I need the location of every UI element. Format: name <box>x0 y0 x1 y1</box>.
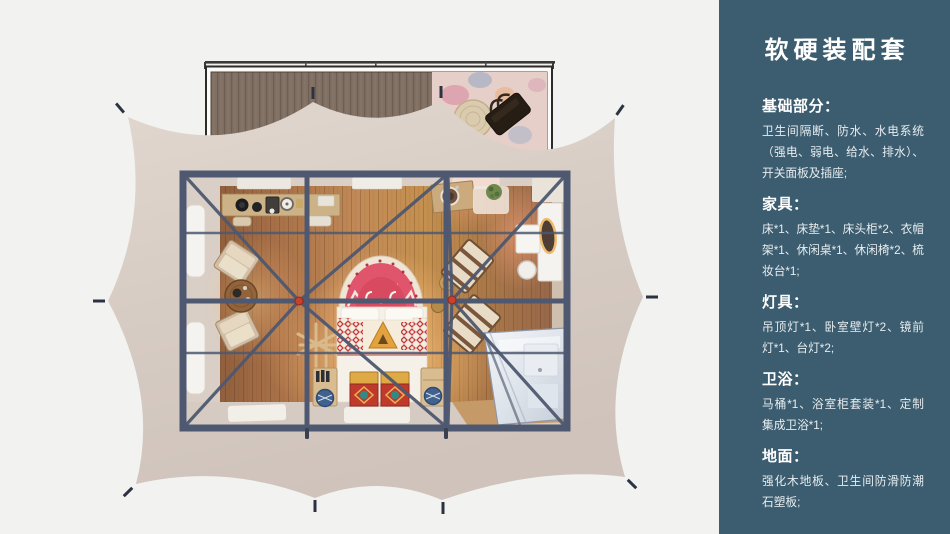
spec-heading: 家具： <box>762 193 924 214</box>
door-strap <box>444 428 448 439</box>
floor-mat <box>228 404 287 422</box>
spec-heading: 基础部分： <box>762 95 924 116</box>
spec-heading: 地面： <box>762 445 924 466</box>
stool <box>233 217 251 226</box>
spec-section-furniture: 家具： 床*1、床垫*1、床头柜*2、衣帽架*1、休闲桌*1、休闲椅*2、梳妆台… <box>762 193 924 282</box>
spec-body: 马桶*1、浴室柜套装*1、定制集成卫浴*1; <box>762 394 924 436</box>
spec-body: 卫生间隔断、防水、水电系统（强电、弱电、给水、排水）、开关面板及插座; <box>762 121 924 184</box>
bedside-cabinet <box>313 368 337 407</box>
spec-sidebar: 软硬装配套 基础部分： 卫生间隔断、防水、水电系统（强电、弱电、给水、排水）、开… <box>719 0 950 534</box>
bench <box>307 216 331 226</box>
page: 软硬装配套 基础部分： 卫生间隔断、防水、水电系统（强电、弱电、给水、排水）、开… <box>0 0 950 534</box>
tent-floorplan-render <box>0 0 719 534</box>
door-strap <box>305 428 309 439</box>
spec-heading: 卫浴： <box>762 368 924 389</box>
shower-unit <box>484 328 566 425</box>
vanity-stool <box>518 261 536 279</box>
hat <box>252 202 262 212</box>
washbasin <box>431 181 476 213</box>
leisure-table <box>225 280 257 312</box>
deck-railing <box>205 61 555 64</box>
spec-section-lighting: 灯具： 吊顶灯*1、卧室壁灯*2、镜前灯*1、台灯*2; <box>762 291 924 359</box>
storage-chest <box>350 372 378 406</box>
floorplan-panel <box>0 0 719 534</box>
sidebar-title: 软硬装配套 <box>719 30 950 65</box>
spec-body: 床*1、床垫*1、床头柜*2、衣帽架*1、休闲桌*1、休闲椅*2、梳妆台*1; <box>762 219 924 282</box>
floor-mat <box>344 407 410 423</box>
vanity-desk <box>516 225 540 253</box>
spec-section-flooring: 地面： 强化木地板、卫生间防滑防潮石塑板; <box>762 445 924 513</box>
potted-plant <box>486 184 502 200</box>
bedside-cabinet <box>421 368 446 406</box>
spec-body: 吊顶灯*1、卧室壁灯*2、镜前灯*1、台灯*2; <box>762 317 924 359</box>
frame-hub <box>295 297 303 305</box>
spec-heading: 灯具： <box>762 291 924 312</box>
tent-interior <box>183 170 567 439</box>
spec-section-bathroom: 卫浴： 马桶*1、浴室柜套装*1、定制集成卫浴*1; <box>762 368 924 436</box>
frame-hub <box>448 296 456 304</box>
spec-section-basics: 基础部分： 卫生间隔断、防水、水电系统（强电、弱电、给水、排水）、开关面板及插座… <box>762 95 924 184</box>
window <box>186 322 205 394</box>
spec-body: 强化木地板、卫生间防滑防潮石塑板; <box>762 471 924 513</box>
window <box>186 205 205 277</box>
storage-chest <box>381 372 409 406</box>
